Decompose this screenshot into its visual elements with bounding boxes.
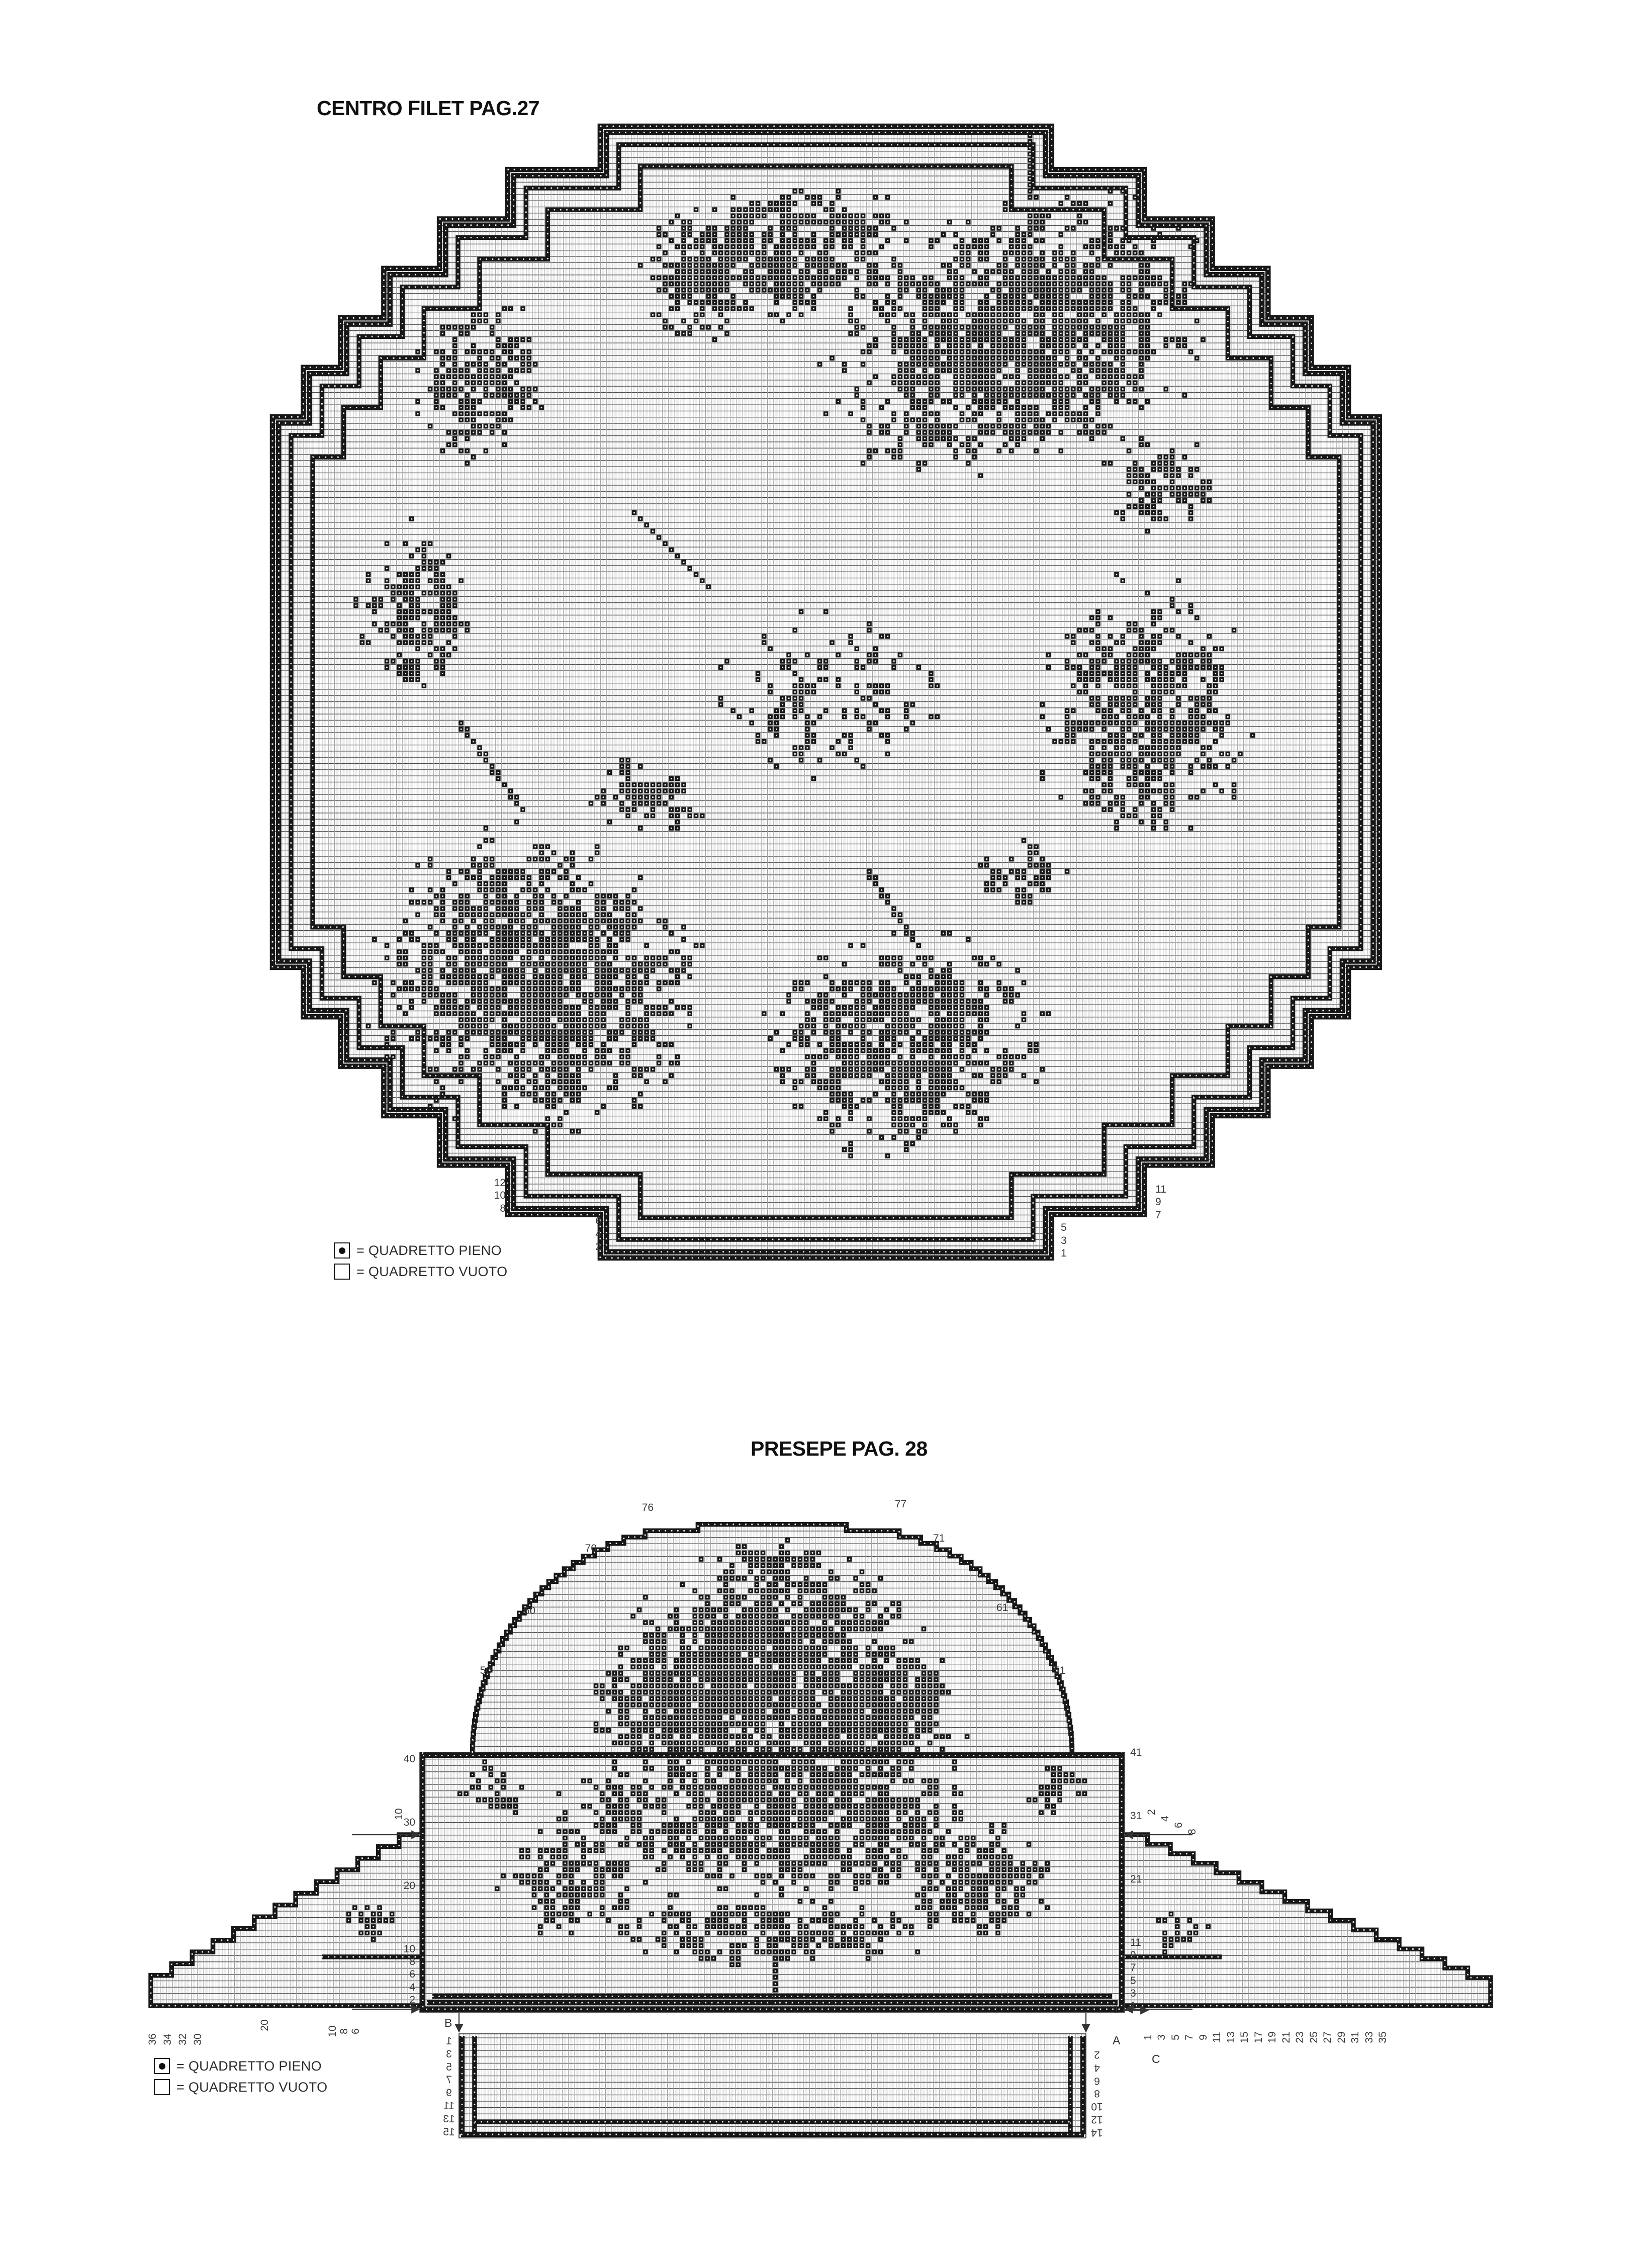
svg-text:60: 60 [524, 1605, 535, 1617]
svg-text:70: 70 [585, 1543, 597, 1554]
svg-text:1: 1 [1130, 2000, 1136, 2012]
svg-text:77: 77 [895, 1498, 906, 1510]
svg-text:36: 36 [147, 2033, 158, 2045]
svg-text:10: 10 [494, 1190, 506, 1201]
filled-square-icon [154, 2058, 170, 2074]
svg-text:3: 3 [1156, 2034, 1167, 2040]
svg-text:2: 2 [595, 1241, 601, 1252]
chart1-legend: = QUADRETTO PIENO = QUADRETTO VUOTO [334, 1242, 507, 1284]
svg-text:7: 7 [1130, 1962, 1136, 1973]
svg-text:4: 4 [1159, 1816, 1171, 1822]
svg-text:7: 7 [446, 2074, 452, 2086]
legend-item-quadretto-vuoto: = QUADRETTO VUOTO [334, 1263, 507, 1280]
svg-text:9: 9 [446, 2087, 452, 2099]
svg-text:7: 7 [1155, 1209, 1161, 1221]
svg-text:6: 6 [409, 1968, 415, 1980]
legend-item-quadretto-pieno: = QUADRETTO PIENO [154, 2057, 327, 2075]
chart-presepe: ABC4030201086424131211197531767770716061… [147, 1498, 1491, 2138]
svg-text:8: 8 [338, 2028, 350, 2034]
svg-text:40: 40 [404, 1753, 415, 1765]
svg-text:7: 7 [1183, 2034, 1195, 2040]
chart2-legend: = QUADRETTO PIENO = QUADRETTO VUOTO [154, 2057, 327, 2100]
svg-text:30: 30 [404, 1817, 415, 1828]
legend-item-quadretto-pieno: = QUADRETTO PIENO [334, 1242, 507, 1259]
magazine-page: CENTRO FILET PAG.27 PRESEPE PAG. 28 1357… [0, 0, 1652, 2243]
svg-text:13: 13 [1225, 2031, 1237, 2043]
svg-text:5: 5 [446, 2061, 452, 2073]
legend-label-vuoto: = QUADRETTO VUOTO [356, 1264, 507, 1280]
svg-text:21: 21 [1130, 1873, 1142, 1885]
legend-label-pieno: = QUADRETTO PIENO [176, 2058, 322, 2074]
svg-text:19: 19 [1266, 2031, 1278, 2043]
svg-text:5: 5 [1130, 1975, 1136, 1987]
empty-square-icon [154, 2079, 170, 2095]
svg-text:61: 61 [996, 1602, 1008, 1613]
svg-text:76: 76 [642, 1502, 654, 1513]
svg-text:35: 35 [1377, 2031, 1389, 2043]
svg-text:71: 71 [933, 1533, 945, 1544]
svg-text:B: B [444, 2016, 452, 2029]
empty-square-icon [334, 1264, 350, 1280]
svg-text:12: 12 [494, 1177, 506, 1189]
svg-text:30: 30 [192, 2033, 204, 2045]
svg-text:14: 14 [1091, 2127, 1103, 2138]
svg-text:50: 50 [480, 1665, 492, 1676]
svg-text:2: 2 [1146, 1809, 1157, 1815]
svg-text:32: 32 [177, 2033, 189, 2045]
chart-centro-filet: 135791124681012 [272, 126, 1380, 1259]
svg-text:31: 31 [1349, 2031, 1361, 2043]
svg-text:4: 4 [595, 1228, 601, 1240]
legend-label-vuoto: = QUADRETTO VUOTO [176, 2080, 327, 2095]
svg-text:9: 9 [1198, 2034, 1209, 2040]
svg-text:10: 10 [404, 1943, 415, 1955]
svg-text:2: 2 [1094, 2049, 1100, 2060]
svg-text:13: 13 [443, 2113, 454, 2125]
svg-text:12: 12 [1091, 2114, 1103, 2125]
svg-text:9: 9 [1130, 1949, 1136, 1961]
svg-text:17: 17 [1253, 2031, 1264, 2043]
svg-text:27: 27 [1322, 2031, 1333, 2043]
svg-text:C: C [1152, 2052, 1160, 2066]
svg-text:4: 4 [1094, 2062, 1100, 2074]
svg-text:15: 15 [443, 2126, 454, 2138]
svg-text:1: 1 [1061, 1247, 1067, 1259]
legend-item-quadretto-vuoto: = QUADRETTO VUOTO [154, 2079, 327, 2096]
svg-text:2: 2 [409, 1994, 415, 2006]
svg-text:4: 4 [409, 1982, 415, 1993]
svg-text:1: 1 [1113, 2004, 1119, 2015]
svg-text:41: 41 [1130, 1747, 1142, 1758]
svg-text:15: 15 [1239, 2031, 1250, 2043]
svg-text:5: 5 [1061, 1222, 1067, 1233]
svg-text:8: 8 [1094, 2088, 1100, 2099]
filet-charts-canvas: 135791124681012ABC4030201086424131211197… [0, 0, 1652, 2243]
svg-text:1: 1 [1142, 2034, 1154, 2040]
svg-text:6: 6 [1094, 2075, 1100, 2087]
legend-label-pieno: = QUADRETTO PIENO [356, 1243, 502, 1259]
svg-text:20: 20 [259, 2019, 270, 2031]
svg-text:29: 29 [1336, 2031, 1347, 2043]
svg-text:1: 1 [446, 2035, 452, 2047]
svg-text:8: 8 [500, 1203, 506, 1214]
svg-text:10: 10 [393, 1808, 405, 1820]
filled-square-icon [334, 1242, 350, 1259]
svg-text:5: 5 [1170, 2034, 1181, 2040]
svg-text:6: 6 [350, 2028, 361, 2034]
svg-text:10: 10 [327, 2025, 338, 2037]
svg-text:3: 3 [446, 2048, 452, 2060]
svg-text:11: 11 [1211, 2032, 1223, 2043]
svg-text:9: 9 [1155, 1196, 1161, 1208]
svg-text:21: 21 [1280, 2031, 1292, 2043]
svg-text:3: 3 [1130, 1988, 1136, 1999]
svg-text:33: 33 [1363, 2031, 1375, 2043]
svg-text:11: 11 [443, 2100, 454, 2112]
svg-text:6: 6 [1173, 1822, 1184, 1828]
svg-text:34: 34 [162, 2033, 173, 2045]
svg-text:8: 8 [1186, 1829, 1198, 1835]
svg-text:25: 25 [1308, 2031, 1320, 2043]
svg-text:10: 10 [1091, 2101, 1103, 2112]
svg-text:11: 11 [1130, 1937, 1141, 1948]
svg-text:51: 51 [1054, 1665, 1065, 1676]
svg-text:8: 8 [409, 1956, 415, 1967]
svg-text:20: 20 [404, 1880, 415, 1892]
svg-text:23: 23 [1294, 2031, 1306, 2043]
svg-text:11: 11 [1155, 1184, 1166, 1195]
svg-text:31: 31 [1130, 1810, 1142, 1822]
svg-text:6: 6 [595, 1215, 601, 1227]
svg-text:3: 3 [1061, 1235, 1067, 1246]
svg-text:A: A [1113, 2034, 1121, 2047]
